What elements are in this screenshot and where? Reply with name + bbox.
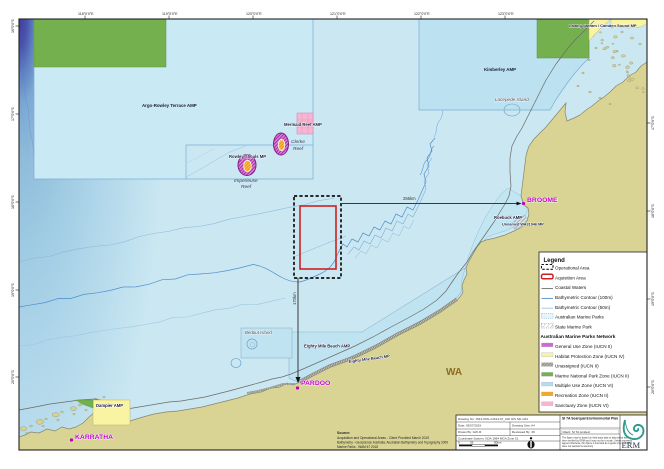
svg-text:121°0'0"E: 121°0'0"E	[330, 12, 346, 16]
svg-text:Kimberley AMP: Kimberley AMP	[484, 67, 516, 72]
svg-text:20°0'0"S: 20°0'0"S	[651, 380, 655, 394]
svg-text:Clerke: Clerke	[291, 139, 305, 145]
svg-text:Reef: Reef	[241, 184, 252, 190]
svg-text:Unassigned (IUCN II): Unassigned (IUCN II)	[555, 364, 599, 369]
svg-text:16°0'0"S: 16°0'0"S	[11, 19, 15, 33]
svg-text:PARDOO: PARDOO	[301, 380, 330, 387]
svg-text:Lalang-garram / Camden Sound M: Lalang-garram / Camden Sound MP	[569, 23, 637, 28]
svg-text:Drawing Size: A4: Drawing Size: A4	[512, 424, 535, 428]
svg-text:Multiple Use Zone (IUCN VI): Multiple Use Zone (IUCN VI)	[555, 383, 614, 388]
svg-text:Legend: Legend	[544, 258, 566, 264]
svg-text:State Marine Park: State Marine Park	[555, 324, 592, 329]
svg-text:Imperieuse: Imperieuse	[234, 178, 258, 184]
svg-text:Source:: Source:	[337, 431, 350, 435]
svg-text:Aquisition Area: Aquisition Area	[555, 275, 586, 280]
svg-text:SI 7A Searqual Environmental P: SI 7A Searqual Environmental Plan	[562, 417, 618, 421]
svg-text:18°0'0"S: 18°0'0"S	[11, 195, 15, 209]
svg-text:Dampier AMP: Dampier AMP	[96, 403, 123, 408]
svg-text:50km: 50km	[494, 441, 502, 445]
svg-text:20°0'0"S: 20°0'0"S	[11, 370, 15, 384]
svg-text:Habitat Protection Zone (IUCN: Habitat Protection Zone (IUCN IV)	[555, 354, 625, 359]
svg-text:119°0'0"E: 119°0'0"E	[162, 12, 178, 16]
svg-text:does not warrant its accuracy.: does not warrant its accuracy.	[562, 445, 594, 448]
svg-text:122°0'0"E: 122°0'0"E	[414, 12, 430, 16]
svg-text:Recreation Zone (IUCN II): Recreation Zone (IUCN II)	[555, 393, 609, 398]
svg-text:Date: 03/07/2019: Date: 03/07/2019	[458, 424, 481, 428]
svg-text:Reef: Reef	[293, 146, 304, 152]
svg-text:120°0'0"E: 120°0'0"E	[246, 12, 262, 16]
svg-text:Marine Parks - WAM 67 2018: Marine Parks - WAM 67 2018	[337, 445, 378, 449]
svg-text:118°0'0"E: 118°0'0"E	[78, 12, 94, 16]
svg-text:General Use Zone (IUCN II): General Use Zone (IUCN II)	[555, 344, 612, 349]
svg-text:Acquisition and Operational Ar: Acquisition and Operational Areas - Clie…	[337, 436, 429, 440]
svg-text:Roebuck AMP: Roebuck AMP	[494, 215, 522, 220]
svg-text:ERM: ERM	[622, 440, 641, 450]
svg-text:Client: SI 7A Limited: Client: SI 7A Limited	[563, 430, 590, 434]
svg-text:18°0'0"S: 18°0'0"S	[651, 204, 655, 218]
svg-text:17°0'0"S: 17°0'0"S	[651, 116, 655, 130]
svg-text:25: 25	[470, 441, 474, 445]
svg-text:Coordinate System: GDA 1994 M: Coordinate System: GDA 1994 MGA Zone 51	[458, 436, 519, 440]
svg-text:Drawn By: GW-III: Drawn By: GW-III	[458, 430, 481, 434]
svg-text:Operational Area: Operational Area	[555, 266, 590, 271]
svg-text:Rowley Shoals MP: Rowley Shoals MP	[229, 154, 266, 159]
svg-text:19°0'0"S: 19°0'0"S	[651, 292, 655, 306]
svg-text:Bathymetric Contour (100m): Bathymetric Contour (100m)	[555, 295, 613, 300]
svg-text:123°0'0"E: 123°0'0"E	[498, 12, 514, 16]
svg-text:KARRATHA: KARRATHA	[75, 434, 113, 441]
svg-text:Argo-Rowley Terrace AMP: Argo-Rowley Terrace AMP	[142, 103, 197, 108]
svg-text:Eighty Mile Beach AMP: Eighty Mile Beach AMP	[304, 344, 350, 349]
svg-text:Australian Marine Parks Networ: Australian Marine Parks Network	[541, 334, 616, 340]
svg-text:Marine National Park Zone (IUC: Marine National Park Zone (IUCN II)	[555, 373, 630, 378]
svg-text:Bedout Island: Bedout Island	[245, 330, 272, 335]
svg-text:170km: 170km	[292, 292, 297, 305]
svg-text:Drawing No: 1543-OML-GIS13-0: Drawing No: 1543-OML-GIS13-07_002 GIS SD…	[458, 417, 528, 421]
svg-text:Coastal Waters: Coastal Waters	[555, 285, 587, 290]
svg-text:19°0'0"S: 19°0'0"S	[11, 283, 15, 297]
svg-text:Bathymetric Contour (50m): Bathymetric Contour (50m)	[555, 305, 611, 310]
svg-text:Unnamed WA31046 MP: Unnamed WA31046 MP	[502, 223, 544, 227]
svg-text:Bathymetry - Geoscience Austra: Bathymetry - Geoscience Australia; Austr…	[337, 441, 448, 445]
svg-text:Reviewed By: JD: Reviewed By: JD	[512, 430, 536, 434]
svg-text:Mermaid Reef AMP: Mermaid Reef AMP	[284, 122, 322, 127]
svg-text:Lacepede Island: Lacepede Island	[495, 97, 529, 102]
svg-text:255km: 255km	[403, 196, 416, 201]
svg-text:17°0'0"S: 17°0'0"S	[11, 107, 15, 121]
svg-text:Sanctuary Zone (IUCN VI): Sanctuary Zone (IUCN VI)	[555, 403, 609, 408]
svg-text:Australian Marine Parks: Australian Marine Parks	[555, 315, 604, 320]
svg-text:WA: WA	[446, 367, 462, 378]
svg-text:BROOME: BROOME	[527, 197, 558, 204]
